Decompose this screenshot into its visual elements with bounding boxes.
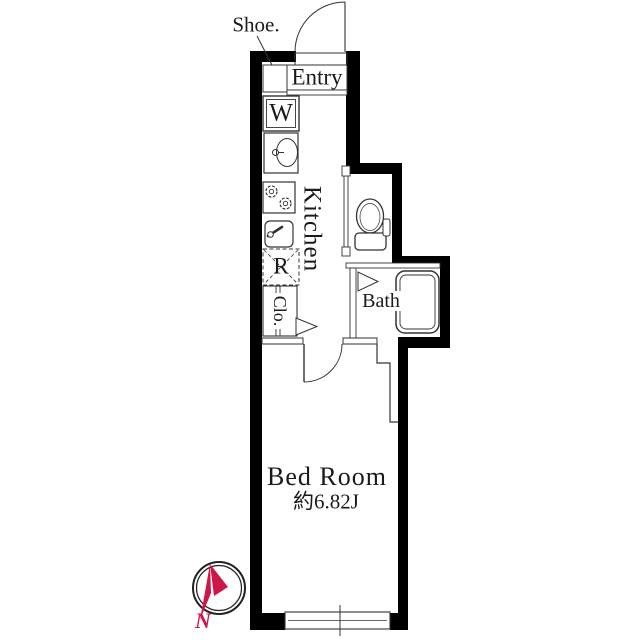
partition-right xyxy=(343,338,377,344)
toilet-bowl-icon xyxy=(357,199,384,233)
entry-label: Entry xyxy=(291,66,342,89)
wall-bottom-left xyxy=(250,613,285,630)
refrigerator-label: R xyxy=(273,255,288,278)
wall-left xyxy=(250,51,262,630)
shoe-cabinet-label: Shoe. xyxy=(232,15,279,36)
bedroom-label: Bed Room xyxy=(267,464,387,490)
stove-burner-center xyxy=(283,201,287,205)
stove-burner-icon xyxy=(280,198,291,209)
floor-plan-drawing xyxy=(0,0,640,640)
toilet-door-jamb xyxy=(342,247,350,256)
compass-north-label: N xyxy=(195,610,211,632)
toilet-door-jamb xyxy=(342,166,350,176)
bath-folding-door-icon xyxy=(358,272,378,291)
stove-counter xyxy=(263,182,295,213)
toilet-bath-divider xyxy=(346,263,440,268)
compass-needle-blade xyxy=(210,564,228,596)
stove-burner-center xyxy=(269,189,273,193)
wall-bath-right xyxy=(440,256,450,348)
shoe-cabinet xyxy=(263,65,287,92)
floor-plan: Shoe. Entry W Kitchen R Clo. Bath Bed Ro… xyxy=(0,0,640,640)
bedroom-size-label: 約6.82J xyxy=(293,492,359,513)
wall-toilet-right xyxy=(392,163,402,264)
pipe-space-niche xyxy=(377,344,398,422)
sink-faucet-base xyxy=(268,232,274,238)
stove-burner-icon xyxy=(266,186,277,197)
bathtub-outer xyxy=(396,271,439,333)
toilet-tank-icon xyxy=(355,233,386,250)
kitchen-label: Kitchen xyxy=(300,186,325,272)
washbasin-faucet-icon xyxy=(273,150,279,156)
bath-label: Bath xyxy=(360,291,402,311)
partition-left xyxy=(262,338,303,344)
wall-right-entry xyxy=(346,51,360,163)
bath-left-wall xyxy=(350,268,356,338)
washing-machine-label: W xyxy=(269,101,293,126)
bedroom-door-arc xyxy=(304,344,342,382)
entry-step-line xyxy=(287,90,347,95)
entry-door-arc xyxy=(295,2,345,52)
wall-bedroom-right xyxy=(398,337,408,630)
closet-label: Clo. xyxy=(271,296,289,327)
wall-bottom-right xyxy=(390,613,408,630)
toilet-control-icon xyxy=(383,219,390,236)
closet-folding-door-icon xyxy=(296,318,317,335)
